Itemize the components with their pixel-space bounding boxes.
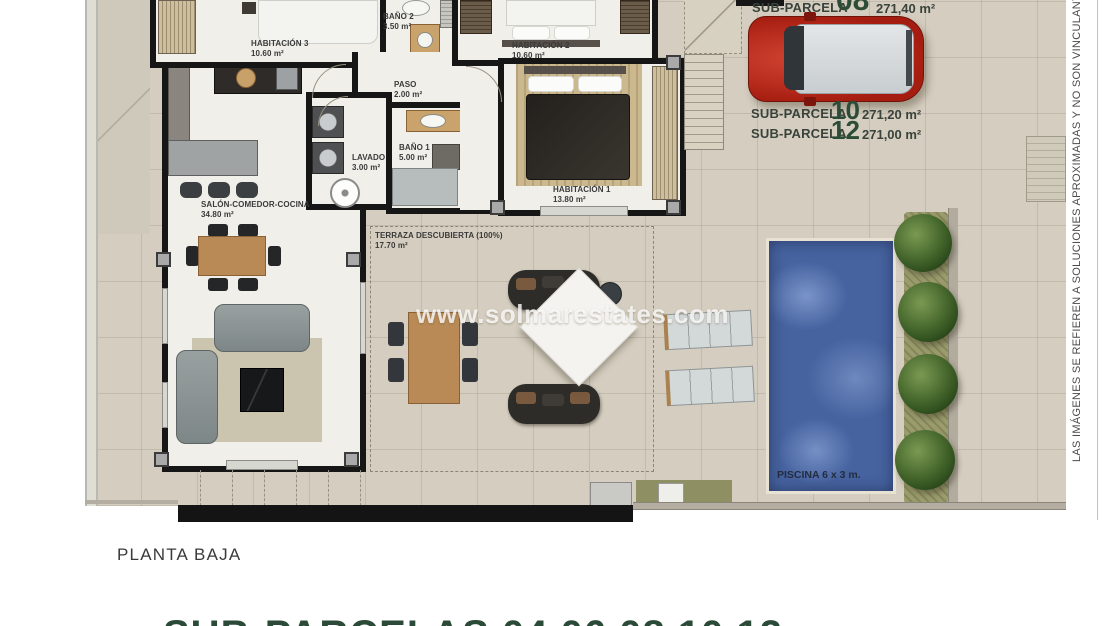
- pillar: [344, 452, 359, 467]
- paving-dash: [296, 470, 297, 506]
- room-label-bano1: BAÑO 1 5.00 m²: [399, 143, 430, 163]
- cushion: [516, 392, 536, 404]
- sub-parcel-prefix: SUB-PARCELA: [752, 0, 848, 15]
- room-label-habitacion2: HABITACIÓN 2 10.60 m²: [512, 41, 570, 61]
- window: [226, 460, 298, 470]
- sub-parcel-area: 271,40 m²: [876, 1, 935, 16]
- tree: [895, 430, 955, 490]
- room-label-bano2: BAÑO 2 3.50 m²: [383, 12, 414, 32]
- floor-title: PLANTA BAJA: [117, 545, 241, 565]
- room-area: 13.80 m²: [553, 195, 611, 205]
- cushion: [516, 278, 536, 290]
- bottom-caption: SUB-PARCELAS 04 06 08 10 12: [163, 613, 783, 626]
- room-area: 2.00 m²: [394, 90, 422, 100]
- dining-table: [198, 236, 266, 276]
- stool: [236, 182, 258, 198]
- wardrobe: [652, 66, 678, 200]
- paving-dash: [200, 470, 201, 506]
- pillar: [346, 252, 361, 267]
- outdoor-chair: [388, 358, 404, 382]
- headboard: [524, 66, 626, 74]
- bed: [526, 94, 630, 180]
- pillar: [156, 252, 171, 267]
- sub-parcel-area: 271,20 m²: [862, 107, 921, 122]
- room-name: LAVADO: [352, 153, 385, 163]
- watermark: www.solmarestates.com: [416, 299, 729, 330]
- car-roof: [794, 24, 914, 94]
- washing-machine: [312, 142, 344, 174]
- kitchen-island: [168, 140, 258, 176]
- wardrobe: [460, 0, 492, 34]
- window: [162, 382, 168, 428]
- floor-plan-page: PISCINA 6 x 3 m.: [0, 0, 1110, 626]
- room-label-lavado: LAVADO 3.00 m²: [352, 153, 385, 173]
- pillar: [666, 55, 681, 70]
- kitchen-appliance: [276, 66, 298, 90]
- room-name: HABITACIÓN 2: [512, 41, 570, 51]
- bottom-edge-line: [85, 500, 178, 504]
- stool: [208, 182, 230, 198]
- room-area: 3.00 m²: [352, 163, 385, 173]
- pillar: [490, 200, 505, 215]
- room-name: HABITACIÓN 1: [553, 185, 611, 195]
- stool: [180, 182, 202, 198]
- chair: [268, 246, 281, 266]
- room-name: PASO: [394, 80, 422, 90]
- window: [162, 288, 168, 344]
- shower-tray: [392, 168, 458, 206]
- bottom-wall-strip: [178, 505, 633, 522]
- tree: [894, 214, 952, 272]
- room-area: 17.70 m²: [375, 241, 503, 251]
- cushion: [542, 394, 564, 406]
- room-label-salon: SALÓN-COMEDOR-COCINA 34.80 m²: [201, 200, 310, 220]
- pool: PISCINA 6 x 3 m.: [766, 238, 896, 494]
- bed: [258, 0, 378, 44]
- shower-bench: [432, 144, 460, 170]
- car-rear-window: [906, 30, 912, 86]
- bed: [506, 0, 596, 26]
- boiler: [330, 178, 360, 208]
- room-name: SALÓN-COMEDOR-COCINA: [201, 200, 310, 210]
- sofa: [176, 350, 218, 444]
- room-area: 10.60 m²: [512, 51, 570, 61]
- room-label-habitacion3: HABITACIÓN 3 10.60 m²: [251, 39, 309, 59]
- tree: [898, 282, 958, 342]
- pillow: [554, 26, 590, 40]
- wardrobe: [620, 0, 650, 34]
- room-label-habitacion1: HABITACIÓN 1 13.80 m²: [553, 185, 611, 205]
- pillar: [666, 200, 681, 215]
- kitchen-sink: [236, 68, 256, 88]
- sofa: [214, 304, 310, 352]
- car-windshield: [784, 26, 804, 90]
- stair-landing: [684, 0, 742, 54]
- paving-dash: [328, 470, 329, 506]
- pillow: [512, 26, 550, 40]
- washbasin: [420, 114, 446, 128]
- bottom-fence-line: [633, 502, 1066, 510]
- sub-parcel-number: 12: [831, 115, 860, 146]
- chair: [238, 278, 258, 291]
- coffee-table: [240, 368, 284, 412]
- washbasin: [417, 32, 433, 48]
- room-area: 34.80 m²: [201, 210, 310, 220]
- cushion: [570, 392, 590, 404]
- window: [540, 206, 628, 216]
- wardrobe: [158, 0, 196, 54]
- outdoor-chair: [462, 358, 478, 382]
- paving-dash: [264, 470, 265, 506]
- room-name: BAÑO 1: [399, 143, 430, 153]
- car: [748, 16, 924, 102]
- pillar: [154, 452, 169, 467]
- pillow: [528, 76, 574, 92]
- neighbor-stairs: [1026, 136, 1066, 202]
- outdoor-sofa: [508, 384, 600, 424]
- sub-parcel-number: 08: [836, 0, 869, 18]
- nightstand: [242, 2, 256, 14]
- paving-dash: [360, 470, 361, 506]
- sun-lounger: [665, 366, 755, 407]
- paving-dash: [232, 470, 233, 506]
- terrace-glass-door: [360, 282, 366, 354]
- room-name: HABITACIÓN 3: [251, 39, 309, 49]
- pillow: [578, 76, 622, 92]
- kitchen-tall-unit: [168, 60, 190, 150]
- room-area: 3.50 m²: [383, 22, 414, 32]
- room-name: TERRAZA DESCUBIERTA (100%): [375, 231, 503, 241]
- property-boundary-left: [85, 0, 98, 506]
- car-mirror: [804, 97, 816, 106]
- sub-parcel-area: 271,00 m²: [862, 127, 921, 142]
- stairs: [684, 54, 724, 150]
- room-area: 10.60 m²: [251, 49, 309, 59]
- pool-label: PISCINA 6 x 3 m.: [777, 469, 861, 481]
- tree: [898, 354, 958, 414]
- room-label-paso: PASO 2.00 m²: [394, 80, 422, 100]
- outdoor-chair: [388, 322, 404, 346]
- chair: [208, 278, 228, 291]
- room-area: 5.00 m²: [399, 153, 430, 163]
- room-label-terraza: TERRAZA DESCUBIERTA (100%) 17.70 m²: [375, 231, 503, 251]
- room-name: BAÑO 2: [383, 12, 414, 22]
- right-edge-line: [1097, 0, 1098, 520]
- side-disclaimer: LAS IMÁGENES SE REFIEREN A SOLUCIONES AP…: [1071, 0, 1083, 462]
- side-path: [98, 0, 150, 234]
